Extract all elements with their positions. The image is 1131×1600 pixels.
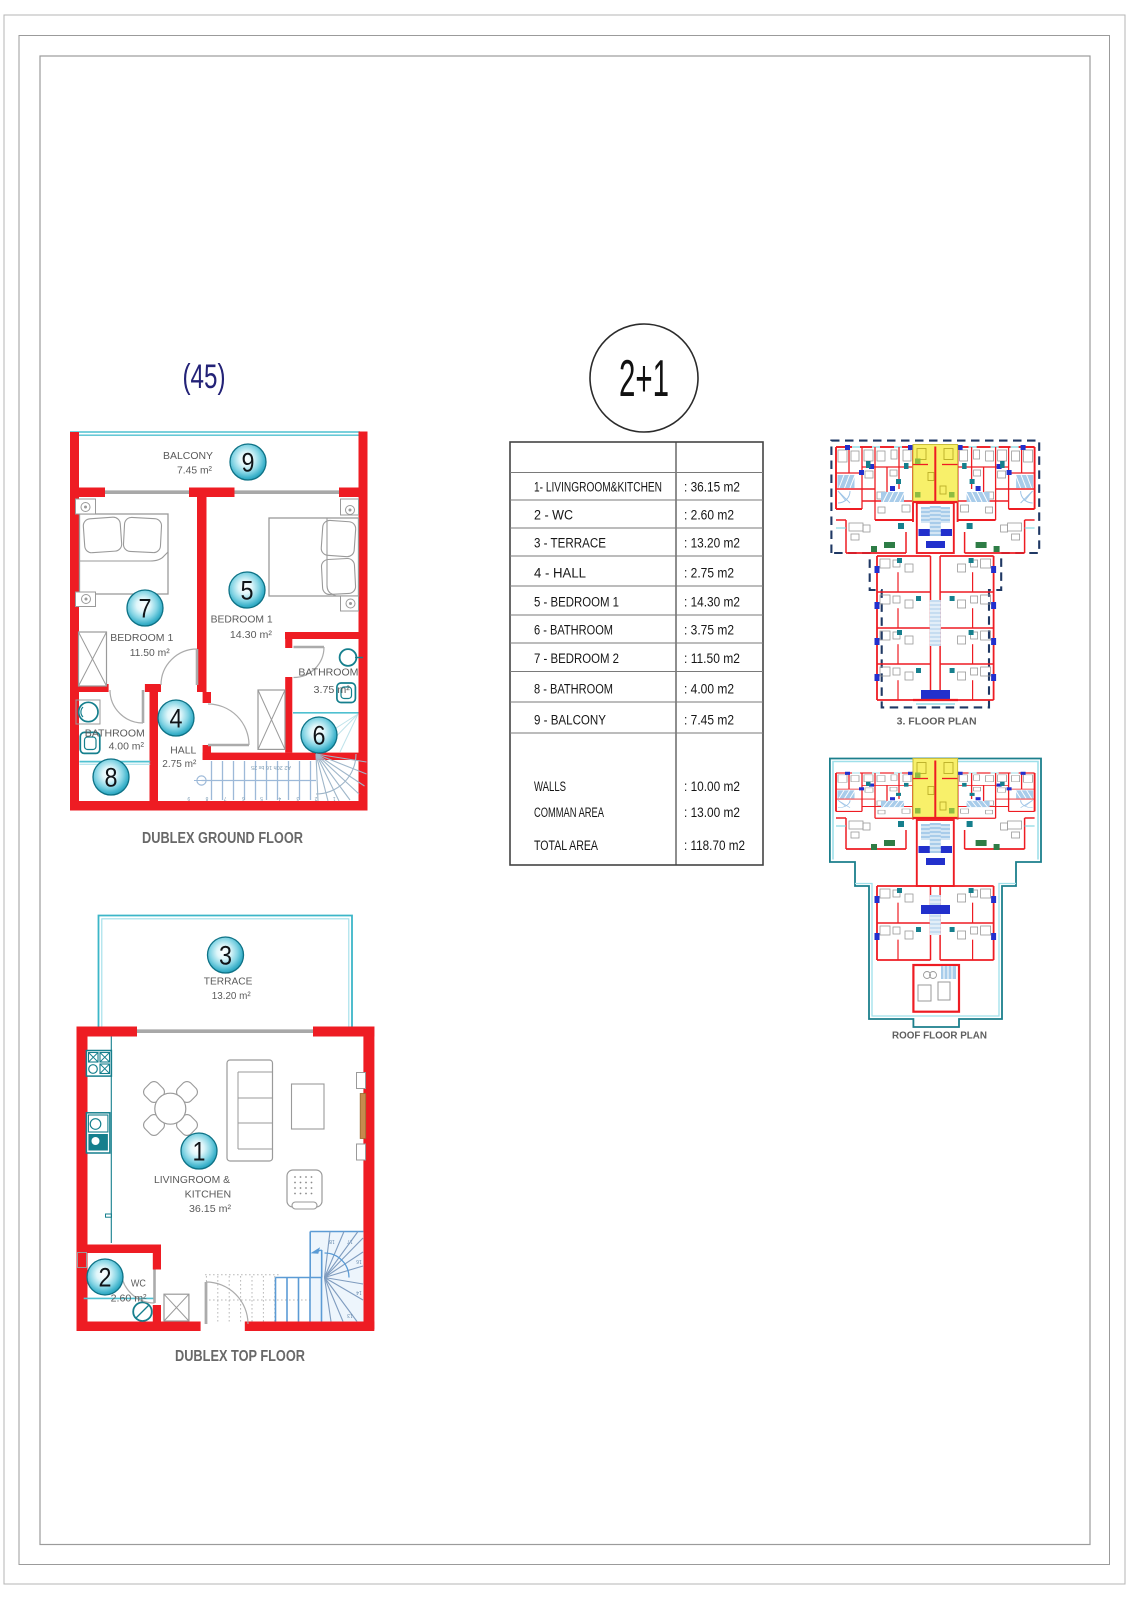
- svg-text:BATHROOM: BATHROOM: [85, 727, 145, 739]
- svg-text:6 - BATHROOM: 6 - BATHROOM: [534, 623, 613, 638]
- svg-text:BATHROOM: BATHROOM: [298, 666, 358, 678]
- svg-text:TERRACE: TERRACE: [204, 976, 253, 988]
- svg-text:14: 14: [356, 1289, 362, 1295]
- svg-text:1 2 3 4 5 6 7 8 9: 1 2 3 4 5 6 7 8 9: [180, 795, 335, 801]
- svg-text:3 - TERRACE: 3 - TERRACE: [534, 536, 606, 551]
- svg-text:: 11.50 m2: : 11.50 m2: [684, 651, 740, 666]
- svg-text:8: 8: [105, 763, 118, 793]
- svg-text:3.75 m²: 3.75 m²: [314, 684, 351, 696]
- svg-text:2+1: 2+1: [619, 350, 669, 408]
- svg-text:BALCONY: BALCONY: [163, 450, 213, 462]
- svg-text:2 - WC: 2 - WC: [534, 508, 573, 523]
- svg-text:: 2.75 m2: : 2.75 m2: [684, 566, 734, 581]
- svg-text:DUBLEX TOP FLOOR: DUBLEX TOP FLOOR: [175, 1348, 305, 1365]
- svg-text:4: 4: [170, 704, 183, 734]
- svg-text:16: 16: [356, 1258, 362, 1264]
- svg-text:3. FLOOR PLAN: 3. FLOOR PLAN: [897, 716, 977, 728]
- svg-text:: 118.70 m2: : 118.70 m2: [684, 838, 745, 853]
- svg-text:11.50 m²: 11.50 m²: [130, 647, 170, 659]
- svg-text:HALL: HALL: [170, 744, 196, 756]
- svg-text:5 - BEDROOM 1: 5 - BEDROOM 1: [534, 595, 619, 610]
- svg-text:TOTAL AREA: TOTAL AREA: [534, 838, 598, 853]
- svg-text:: 13.00 m2: : 13.00 m2: [684, 805, 740, 820]
- svg-text:36.15 m²: 36.15 m²: [189, 1203, 232, 1215]
- svg-text:9 - BALCONY: 9 - BALCONY: [534, 713, 606, 728]
- svg-text:9: 9: [242, 448, 255, 478]
- svg-text:1: 1: [193, 1137, 206, 1167]
- svg-text:7.45 m²: 7.45 m²: [177, 465, 212, 477]
- svg-text:WALLS: WALLS: [534, 779, 566, 794]
- svg-text:2: 2: [99, 1263, 112, 1293]
- svg-text:4.00 m²: 4.00 m²: [109, 740, 145, 752]
- svg-text:: 3.75 m2: : 3.75 m2: [684, 623, 734, 638]
- svg-text:3: 3: [219, 941, 232, 971]
- svg-text:: 10.00 m2: : 10.00 m2: [684, 779, 740, 794]
- svg-text:1- LIVINGROOM&KITCHEN: 1- LIVINGROOM&KITCHEN: [534, 480, 662, 495]
- svg-text:: 7.45 m2: : 7.45 m2: [684, 713, 734, 728]
- svg-text:KITCHEN: KITCHEN: [185, 1189, 231, 1201]
- svg-text:4 - HALL: 4 - HALL: [534, 566, 586, 581]
- svg-text:: 14.30 m2: : 14.30 m2: [684, 595, 740, 610]
- svg-text:: 4.00 m2: : 4.00 m2: [684, 682, 734, 697]
- svg-text:13: 13: [347, 1312, 353, 1318]
- svg-text:18: 18: [329, 1238, 335, 1244]
- svg-text:WC: WC: [131, 1277, 146, 1289]
- svg-text:COMMAN AREA: COMMAN AREA: [534, 805, 604, 820]
- svg-text:A2 20h 16 bx 25: A2 20h 16 bx 25: [251, 764, 291, 770]
- svg-text:14.30 m²: 14.30 m²: [230, 629, 273, 641]
- svg-text:: 36.15 m2: : 36.15 m2: [684, 480, 740, 495]
- svg-text:8 - BATHROOM: 8 - BATHROOM: [534, 682, 613, 697]
- svg-text:17: 17: [347, 1238, 353, 1244]
- svg-text:2.75 m²: 2.75 m²: [162, 758, 196, 770]
- svg-text:7 - BEDROOM 2: 7 - BEDROOM 2: [534, 651, 619, 666]
- svg-text:(45): (45): [183, 358, 226, 396]
- svg-text:: 2.60 m2: : 2.60 m2: [684, 508, 734, 523]
- svg-text:5: 5: [241, 576, 254, 606]
- svg-text:13.20 m²: 13.20 m²: [212, 990, 251, 1002]
- svg-text:: 13.20 m2: : 13.20 m2: [684, 536, 740, 551]
- svg-text:2.60 m²: 2.60 m²: [111, 1292, 147, 1304]
- svg-text:LIVINGROOM &: LIVINGROOM &: [154, 1174, 230, 1186]
- svg-text:BEDROOM 1: BEDROOM 1: [110, 632, 173, 644]
- svg-text:ROOF FLOOR PLAN: ROOF FLOOR PLAN: [892, 1029, 987, 1041]
- svg-text:7: 7: [139, 594, 152, 624]
- svg-text:BEDROOM 1: BEDROOM 1: [211, 614, 273, 626]
- svg-text:6: 6: [313, 721, 326, 751]
- svg-text:DUBLEX GROUND FLOOR: DUBLEX GROUND FLOOR: [142, 830, 303, 847]
